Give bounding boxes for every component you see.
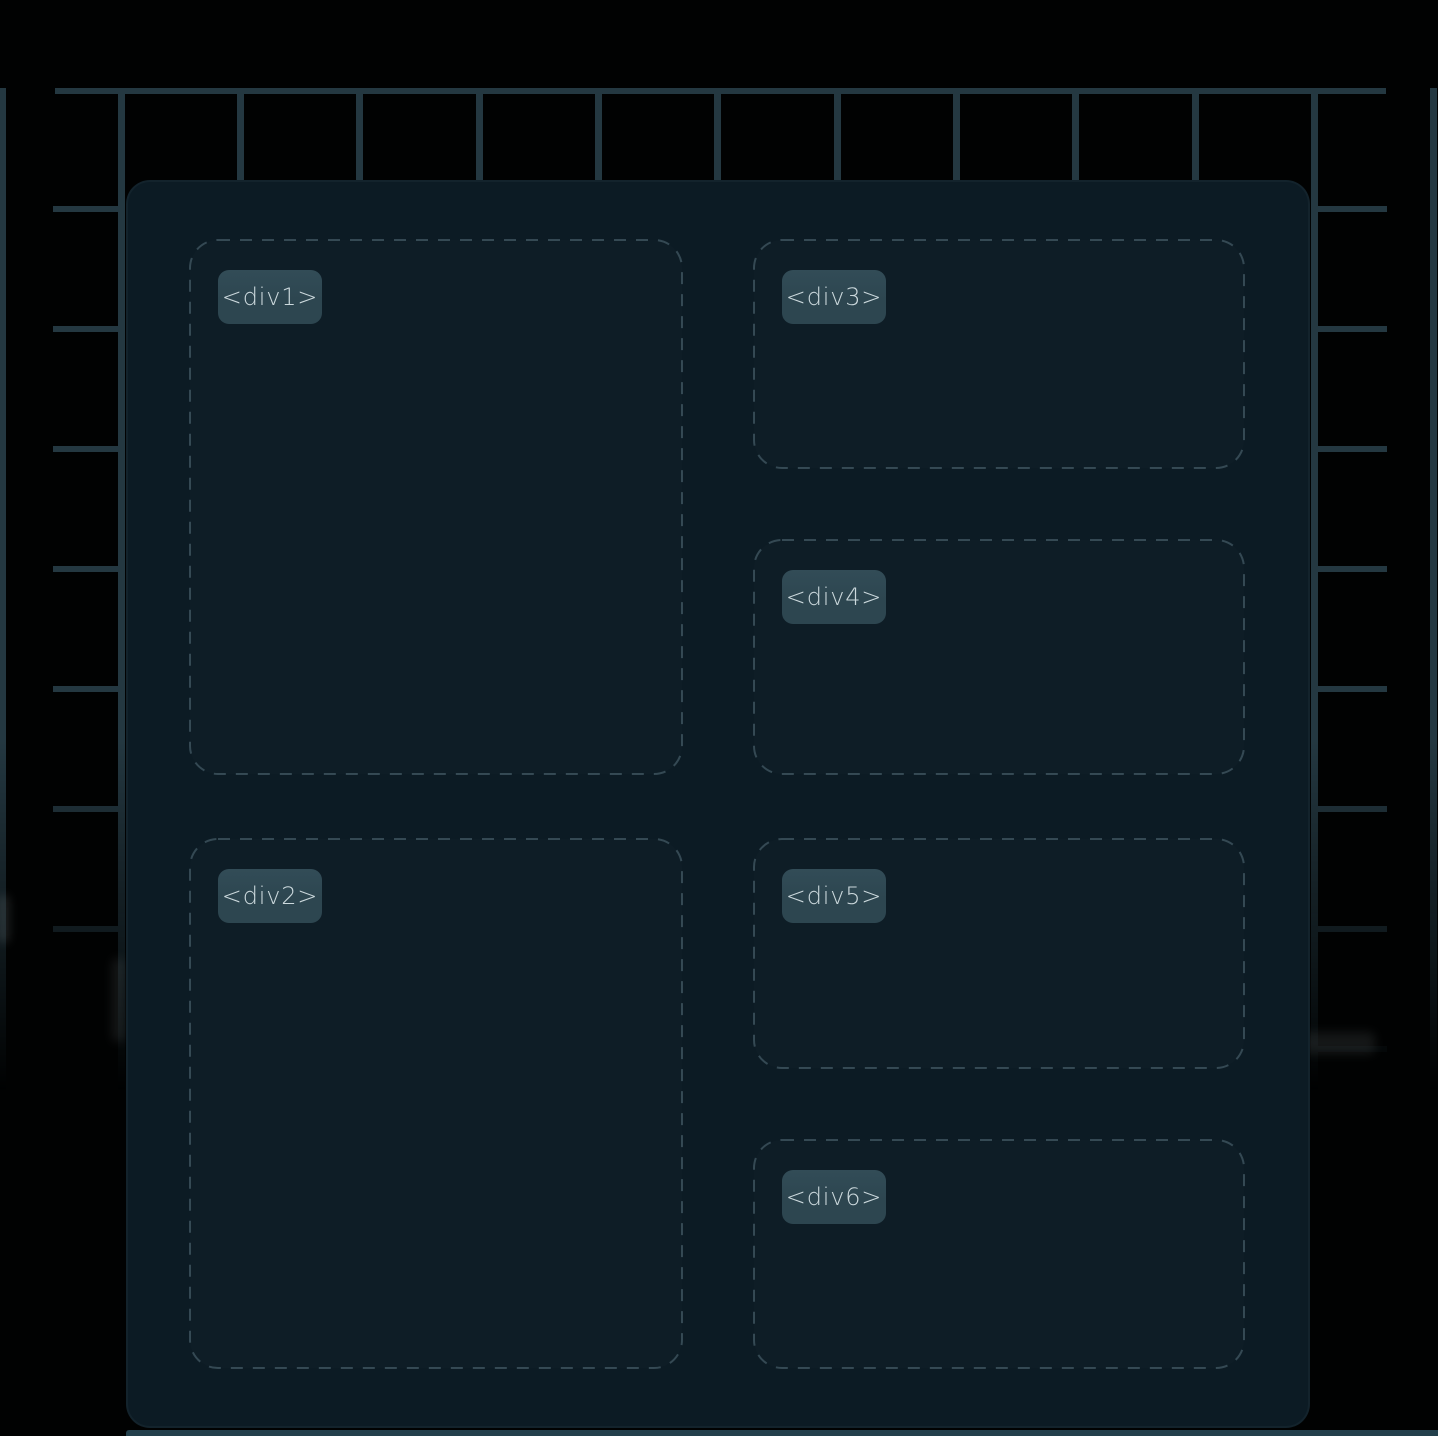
tag-chip-div3: <div3> (782, 270, 886, 324)
tag-chip-div4-label: <div4> (786, 585, 882, 609)
layout-illustration: <div1> <div2> <div3> <div4> <div5> <div6… (0, 0, 1438, 1436)
tag-chip-div3-label: <div3> (786, 285, 882, 309)
tag-chip-div2: <div2> (218, 869, 322, 923)
tag-chip-div6: <div6> (782, 1170, 886, 1224)
dashed-boxes-layer (0, 0, 1438, 1436)
tag-chip-div5: <div5> (782, 869, 886, 923)
tag-chip-div6-label: <div6> (786, 1185, 882, 1209)
tag-chip-div1-label: <div1> (222, 285, 318, 309)
tag-chip-div4: <div4> (782, 570, 886, 624)
tag-chip-div2-label: <div2> (222, 884, 318, 908)
tag-chip-div1: <div1> (218, 270, 322, 324)
tag-chip-div5-label: <div5> (786, 884, 882, 908)
